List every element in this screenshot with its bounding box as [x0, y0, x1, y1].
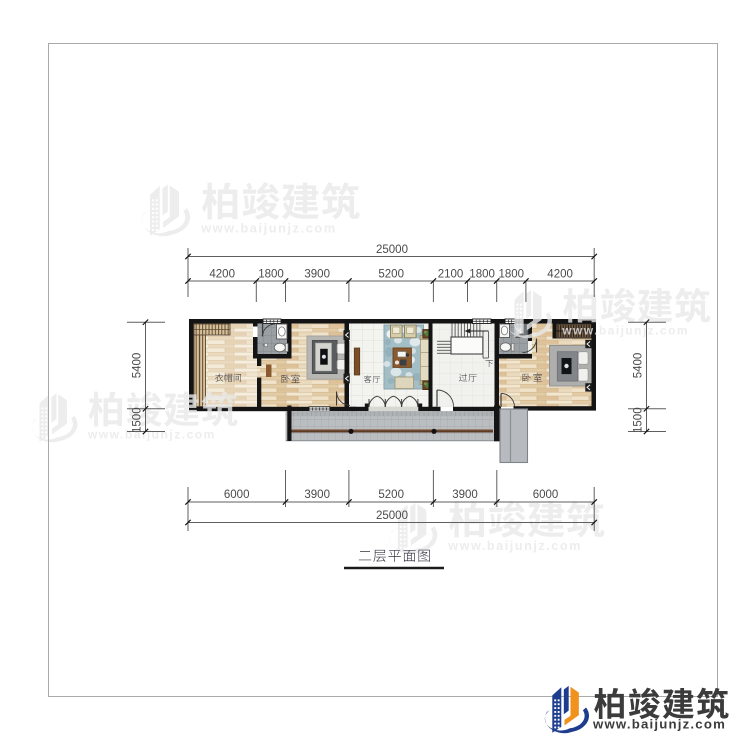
svg-text:www.baijunjz.com: www.baijunjz.com	[561, 324, 689, 338]
svg-text:www.baijunjz.com: www.baijunjz.com	[447, 539, 582, 553]
svg-text:2100: 2100	[438, 269, 464, 281]
svg-text:6000: 6000	[224, 489, 250, 501]
svg-text:1800: 1800	[499, 269, 525, 281]
svg-text:3900: 3900	[452, 489, 478, 501]
svg-text:5400: 5400	[132, 353, 144, 379]
svg-text:4200: 4200	[209, 269, 235, 281]
svg-text:3900: 3900	[304, 489, 330, 501]
svg-text:5400: 5400	[633, 353, 645, 379]
svg-text:5200: 5200	[378, 269, 404, 281]
svg-text:1500: 1500	[633, 407, 645, 433]
svg-text:www.baijunjz.com: www.baijunjz.com	[592, 717, 726, 732]
svg-text:www.baijunjz.com: www.baijunjz.com	[200, 220, 337, 235]
svg-text:5200: 5200	[378, 489, 404, 501]
svg-text:1500: 1500	[132, 407, 144, 433]
svg-text:6000: 6000	[533, 489, 559, 501]
svg-text:1800: 1800	[469, 269, 495, 281]
svg-text:25000: 25000	[376, 510, 408, 522]
svg-text:3900: 3900	[304, 269, 330, 281]
svg-text:1800: 1800	[258, 269, 284, 281]
svg-text:www.baijunjz.com: www.baijunjz.com	[87, 428, 216, 442]
svg-text:25000: 25000	[376, 244, 408, 256]
svg-text:4200: 4200	[547, 269, 573, 281]
